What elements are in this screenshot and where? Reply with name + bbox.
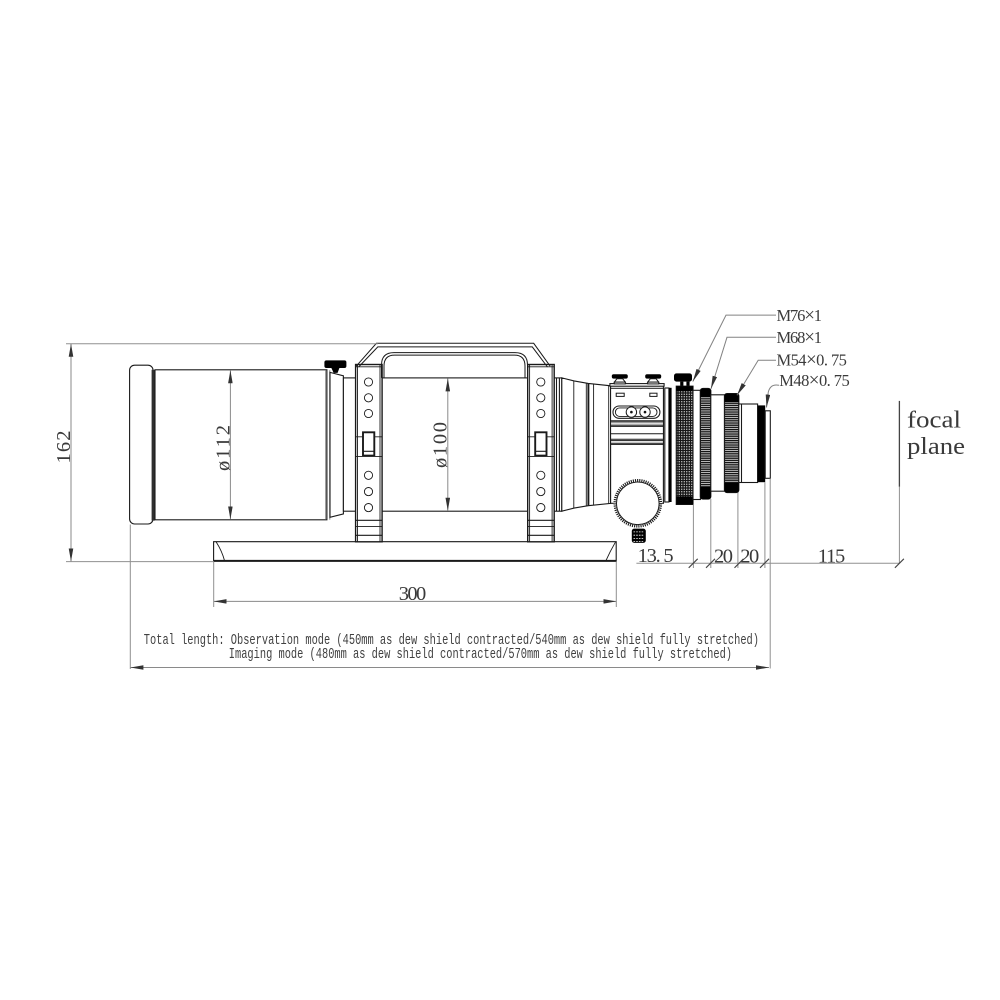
svg-text:13. 5: 13. 5	[638, 545, 674, 567]
svg-text:plane: plane	[907, 434, 965, 460]
svg-text:115: 115	[818, 545, 846, 567]
svg-text:M68×1: M68×1	[777, 327, 823, 348]
svg-text:162: 162	[53, 431, 75, 464]
svg-text:M76×1: M76×1	[777, 305, 823, 326]
svg-text:focal: focal	[907, 407, 961, 433]
svg-text:Imaging mode (480mm as dew shi: Imaging mode (480mm as dew shield contra…	[229, 646, 732, 663]
svg-text:ø100: ø100	[430, 422, 452, 468]
svg-text:20: 20	[740, 545, 759, 567]
svg-text:300: 300	[399, 583, 427, 605]
svg-text:ø112: ø112	[212, 425, 234, 471]
svg-text:M54×0. 75: M54×0. 75	[777, 350, 847, 371]
svg-text:20: 20	[714, 545, 733, 567]
svg-text:M48×0. 75: M48×0. 75	[779, 370, 849, 391]
